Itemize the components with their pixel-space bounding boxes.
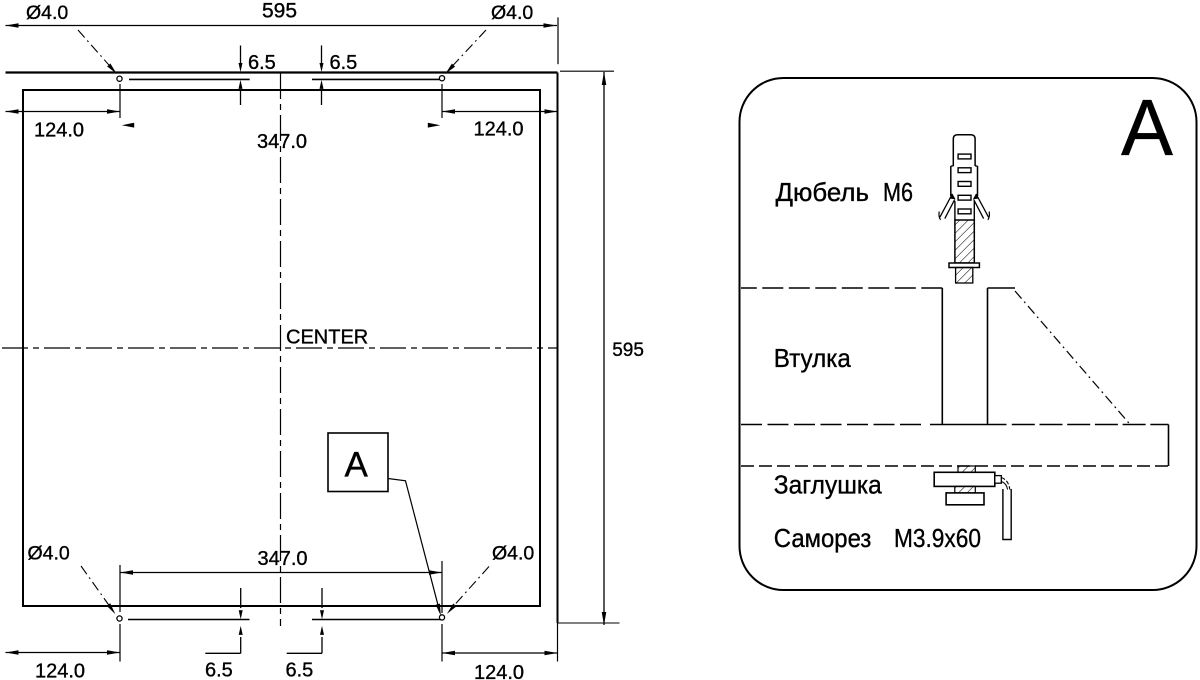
svg-text:Ø4.0: Ø4.0	[492, 543, 534, 565]
svg-text:М6: М6	[883, 177, 913, 207]
svg-text:6.5: 6.5	[248, 52, 276, 74]
svg-text:6.5: 6.5	[205, 660, 233, 680]
svg-text:Ø4.0: Ø4.0	[26, 2, 68, 24]
svg-text:A: A	[1121, 83, 1174, 172]
svg-text:124.0: 124.0	[474, 662, 524, 680]
svg-text:595: 595	[262, 0, 297, 23]
svg-text:Ø4.0: Ø4.0	[28, 543, 70, 565]
svg-text:124.0: 124.0	[35, 661, 85, 680]
svg-text:595: 595	[612, 340, 644, 361]
svg-text:Саморез: Саморез	[774, 523, 872, 553]
svg-text:124.0: 124.0	[34, 120, 84, 142]
svg-text:М3.9х60: М3.9х60	[894, 523, 981, 553]
svg-text:347.0: 347.0	[258, 548, 308, 570]
svg-text:347.0: 347.0	[257, 131, 307, 153]
svg-text:Втулка: Втулка	[774, 343, 852, 373]
svg-text:A: A	[345, 446, 369, 485]
svg-text:Дюбель: Дюбель	[776, 177, 870, 207]
svg-text:Заглушка: Заглушка	[774, 470, 883, 500]
svg-text:6.5: 6.5	[286, 660, 314, 680]
svg-text:124.0: 124.0	[474, 119, 524, 141]
svg-text:CENTER: CENTER	[286, 327, 368, 349]
svg-text:Ø4.0: Ø4.0	[491, 2, 533, 24]
svg-text:6.5: 6.5	[330, 52, 358, 74]
